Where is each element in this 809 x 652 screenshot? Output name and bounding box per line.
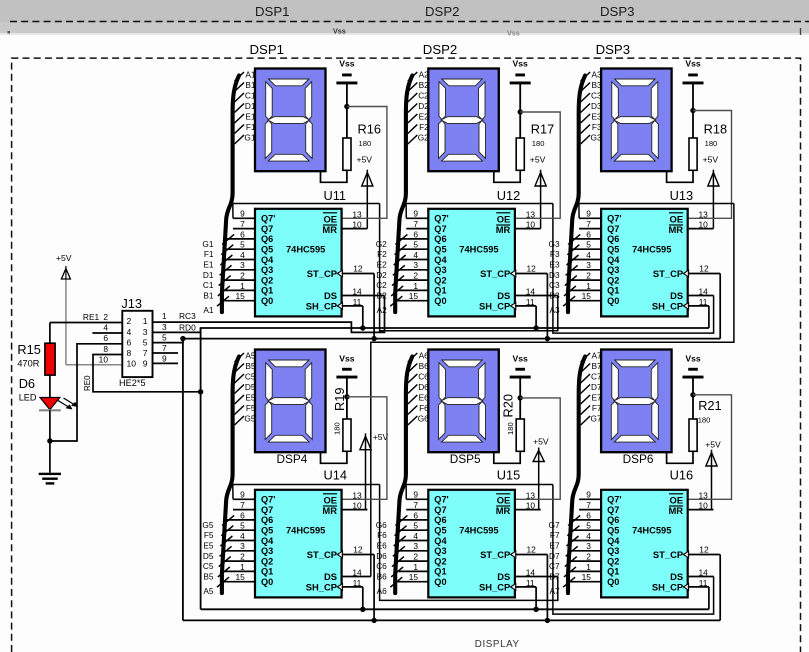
svg-text:9: 9: [143, 359, 148, 369]
svg-text:Q7: Q7: [261, 505, 273, 515]
svg-text:Q2: Q2: [261, 556, 273, 566]
svg-text:15: 15: [235, 572, 245, 582]
svg-text:A1: A1: [245, 70, 256, 80]
svg-text:5: 5: [143, 337, 148, 347]
svg-text:5: 5: [586, 521, 591, 531]
svg-text:3: 3: [586, 260, 591, 270]
svg-text:Q7': Q7': [607, 495, 621, 505]
svg-text:Q5: Q5: [434, 526, 446, 536]
svg-text:180: 180: [359, 139, 372, 148]
svg-text:Q3: Q3: [607, 265, 619, 275]
svg-text:DS: DS: [324, 290, 337, 301]
svg-text:A5: A5: [245, 351, 256, 361]
svg-text:Q1: Q1: [261, 286, 273, 296]
svg-text:9: 9: [413, 490, 418, 500]
svg-text:U13: U13: [670, 188, 693, 203]
svg-text:E3: E3: [549, 260, 560, 270]
svg-text:10: 10: [352, 501, 362, 511]
svg-text:A6: A6: [377, 586, 388, 596]
svg-text:Q6: Q6: [261, 515, 273, 525]
svg-text:Q0: Q0: [607, 577, 619, 587]
svg-text:10: 10: [127, 359, 137, 369]
svg-text:HE2*5: HE2*5: [119, 378, 146, 388]
svg-text:Q6: Q6: [607, 234, 619, 244]
svg-text:Q4: Q4: [261, 536, 274, 546]
svg-text:Q2: Q2: [434, 275, 446, 285]
svg-text:OE: OE: [323, 213, 337, 224]
svg-text:Q0: Q0: [261, 296, 273, 306]
svg-text:7: 7: [143, 348, 148, 358]
svg-text:A7: A7: [549, 586, 560, 596]
svg-text:D7: D7: [549, 551, 560, 561]
svg-text:B6: B6: [377, 571, 388, 581]
svg-text:A2: A2: [419, 70, 430, 80]
svg-text:7: 7: [240, 500, 245, 510]
svg-text:3: 3: [143, 327, 148, 337]
svg-text:2: 2: [127, 316, 132, 326]
svg-text:Q6: Q6: [434, 234, 446, 244]
svg-text:Q6: Q6: [607, 515, 619, 525]
svg-text:C2: C2: [376, 280, 387, 290]
svg-text:Q0: Q0: [434, 577, 446, 587]
svg-text:Q6: Q6: [261, 234, 273, 244]
svg-text:Q4: Q4: [607, 536, 620, 546]
svg-text:A6: A6: [419, 351, 430, 361]
svg-text:G1: G1: [244, 133, 255, 143]
svg-text:G1: G1: [202, 239, 213, 249]
svg-text:DSP1: DSP1: [250, 42, 284, 57]
svg-text:Q2: Q2: [434, 556, 446, 566]
svg-text:13: 13: [352, 490, 362, 500]
svg-text:OE: OE: [670, 213, 684, 224]
svg-text:B7: B7: [549, 571, 560, 581]
svg-text:E3: E3: [591, 112, 602, 122]
svg-text:MR: MR: [322, 224, 337, 235]
svg-text:D5: D5: [203, 551, 214, 561]
svg-text:7: 7: [240, 219, 245, 229]
svg-text:12: 12: [699, 545, 709, 555]
svg-text:A3: A3: [591, 70, 602, 80]
svg-text:RE0: RE0: [83, 375, 92, 391]
svg-text:Q5: Q5: [434, 245, 446, 255]
svg-text:RC3: RC3: [179, 311, 196, 321]
svg-text:C6: C6: [418, 372, 429, 382]
svg-text:E5: E5: [245, 393, 256, 403]
svg-text:5: 5: [240, 521, 245, 531]
svg-text:C5: C5: [203, 561, 214, 571]
svg-text:D6: D6: [19, 376, 35, 391]
svg-text:180: 180: [532, 139, 545, 148]
svg-text:R17: R17: [531, 122, 554, 137]
svg-text:74HC595: 74HC595: [459, 245, 498, 255]
svg-text:C3: C3: [549, 280, 560, 290]
svg-text:180: 180: [506, 422, 515, 435]
svg-text:180: 180: [333, 422, 342, 435]
svg-text:F7: F7: [550, 530, 560, 540]
svg-text:C5: C5: [245, 372, 256, 382]
svg-text:SH_CP: SH_CP: [479, 582, 510, 593]
svg-text:Q0: Q0: [434, 296, 446, 306]
svg-text:Q1: Q1: [261, 567, 273, 577]
svg-text:Q7: Q7: [261, 224, 273, 234]
svg-text:B1: B1: [203, 290, 214, 300]
svg-text:D1: D1: [245, 101, 256, 111]
svg-text:B5: B5: [203, 571, 214, 581]
svg-text:Vss: Vss: [513, 354, 529, 364]
svg-text:3: 3: [413, 260, 418, 270]
svg-text:1: 1: [162, 311, 167, 321]
svg-text:G6: G6: [418, 414, 429, 424]
svg-text:2: 2: [240, 271, 245, 281]
svg-text:Vss: Vss: [685, 59, 701, 69]
svg-text:SH_CP: SH_CP: [479, 301, 510, 312]
svg-text:4: 4: [413, 250, 418, 260]
svg-text:B3: B3: [591, 80, 602, 90]
svg-text:1: 1: [240, 562, 245, 572]
svg-text:B6: B6: [419, 361, 430, 371]
svg-text:2: 2: [586, 552, 591, 562]
svg-text:F2: F2: [377, 249, 387, 259]
svg-text:ST_CP: ST_CP: [480, 268, 510, 279]
svg-text:6: 6: [586, 229, 591, 239]
svg-text:Q3: Q3: [434, 265, 446, 275]
svg-text:Q6: Q6: [434, 515, 446, 525]
svg-text:DSP3: DSP3: [596, 42, 630, 57]
svg-text:ST_CP: ST_CP: [307, 268, 337, 279]
svg-text:DSP3: DSP3: [600, 4, 634, 19]
svg-text:+5V: +5V: [533, 436, 549, 446]
svg-text:10: 10: [526, 501, 536, 511]
svg-text:13: 13: [526, 490, 536, 500]
svg-text:2: 2: [586, 271, 591, 281]
svg-text:R21: R21: [698, 398, 721, 413]
svg-text:1: 1: [413, 562, 418, 572]
svg-text:E5: E5: [203, 541, 214, 551]
svg-text:MR: MR: [322, 505, 337, 516]
svg-text:+5V: +5V: [357, 155, 373, 165]
svg-text:U14: U14: [324, 467, 347, 482]
svg-text:13: 13: [526, 209, 536, 219]
svg-text:ST_CP: ST_CP: [653, 268, 683, 279]
svg-text:+5V: +5V: [530, 155, 546, 165]
svg-text:15: 15: [409, 291, 419, 301]
svg-text:6: 6: [413, 229, 418, 239]
svg-text:7: 7: [586, 500, 591, 510]
svg-text:B2: B2: [419, 80, 430, 90]
svg-text:B2: B2: [377, 290, 388, 300]
svg-text:Vss: Vss: [333, 27, 346, 36]
svg-text:2: 2: [240, 552, 245, 562]
svg-text:5: 5: [240, 240, 245, 250]
svg-text:D3: D3: [549, 270, 560, 280]
svg-text:RD0: RD0: [179, 323, 196, 333]
svg-text:Q7': Q7': [434, 495, 448, 505]
svg-text:4: 4: [240, 250, 245, 260]
svg-text:2: 2: [413, 552, 418, 562]
svg-text:7: 7: [162, 343, 167, 353]
svg-text:B5: B5: [245, 361, 256, 371]
svg-text:5: 5: [413, 521, 418, 531]
svg-text:180: 180: [705, 139, 718, 148]
svg-text:Vss: Vss: [339, 354, 355, 364]
svg-text:180: 180: [698, 415, 711, 424]
svg-text:G3: G3: [591, 133, 602, 143]
svg-text:470R: 470R: [17, 359, 39, 369]
svg-text:9: 9: [413, 209, 418, 219]
svg-text:OE: OE: [497, 213, 511, 224]
svg-text:LED: LED: [19, 393, 37, 403]
svg-text:1: 1: [586, 281, 591, 291]
svg-text:ST_CP: ST_CP: [480, 549, 510, 560]
svg-text:MR: MR: [669, 224, 684, 235]
svg-text:R19: R19: [332, 388, 347, 411]
svg-text:Q4: Q4: [607, 255, 620, 265]
svg-text:RE1: RE1: [83, 312, 100, 322]
svg-text:DSP2: DSP2: [423, 42, 457, 57]
svg-text:Q2: Q2: [261, 275, 273, 285]
svg-text:G2: G2: [376, 239, 387, 249]
svg-text:5: 5: [413, 240, 418, 250]
svg-text:Q4: Q4: [434, 536, 447, 546]
svg-text:12: 12: [699, 264, 709, 274]
svg-text:SH_CP: SH_CP: [306, 301, 337, 312]
svg-text:SH_CP: SH_CP: [306, 582, 337, 593]
svg-text:A3: A3: [549, 305, 560, 315]
svg-text:DISPLAY: DISPLAY: [475, 639, 520, 650]
svg-text:6: 6: [103, 333, 108, 343]
svg-text:G5: G5: [202, 520, 213, 530]
svg-text:G7: G7: [549, 520, 560, 530]
svg-text:12: 12: [353, 545, 363, 555]
svg-text:Q3: Q3: [261, 265, 273, 275]
svg-text:Q3: Q3: [261, 546, 273, 556]
svg-text:12: 12: [353, 264, 363, 274]
svg-text:Q3: Q3: [434, 546, 446, 556]
svg-text:Q0: Q0: [261, 577, 273, 587]
svg-text:G2: G2: [418, 133, 429, 143]
svg-text:6: 6: [240, 510, 245, 520]
svg-text:6: 6: [586, 510, 591, 520]
svg-text:15: 15: [582, 291, 592, 301]
svg-text:SH_CP: SH_CP: [652, 301, 683, 312]
svg-text:C6: C6: [376, 561, 387, 571]
svg-text:+5V: +5V: [56, 253, 72, 263]
svg-text:Q1: Q1: [607, 567, 619, 577]
svg-text:Q4: Q4: [434, 255, 447, 265]
svg-text:C3: C3: [591, 91, 602, 101]
svg-text:E6: E6: [377, 541, 388, 551]
svg-text:+5V: +5V: [705, 440, 721, 450]
svg-text:DSP6: DSP6: [623, 452, 654, 466]
svg-text:13: 13: [699, 490, 709, 500]
svg-text:R18: R18: [704, 122, 727, 137]
svg-text:15: 15: [235, 291, 245, 301]
svg-text:OE: OE: [497, 494, 511, 505]
svg-text:9: 9: [162, 353, 167, 363]
svg-text:Q7: Q7: [607, 505, 619, 515]
svg-text:4: 4: [127, 327, 132, 337]
svg-text:Q5: Q5: [261, 245, 273, 255]
svg-text:OE: OE: [323, 494, 337, 505]
svg-text:8: 8: [127, 348, 132, 358]
svg-text:4: 4: [413, 531, 418, 541]
svg-text:Q7: Q7: [434, 224, 446, 234]
svg-text:13: 13: [352, 209, 362, 219]
svg-text:13: 13: [699, 209, 709, 219]
svg-text:F6: F6: [419, 403, 429, 413]
svg-text:D6: D6: [418, 382, 429, 392]
svg-text:F6: F6: [377, 530, 387, 540]
svg-text:Q4: Q4: [261, 255, 274, 265]
svg-text:8: 8: [103, 344, 108, 354]
svg-text:C2: C2: [418, 91, 429, 101]
svg-text:Q7': Q7': [434, 214, 448, 224]
svg-text:74HC595: 74HC595: [632, 245, 671, 255]
svg-text:10: 10: [699, 501, 709, 511]
svg-text:Q1: Q1: [434, 567, 446, 577]
svg-text:10: 10: [526, 220, 536, 230]
svg-text:3: 3: [162, 322, 167, 332]
svg-text:Q2: Q2: [607, 556, 619, 566]
svg-text:D6: D6: [376, 551, 387, 561]
svg-text:Q1: Q1: [607, 286, 619, 296]
svg-text:Q1: Q1: [434, 286, 446, 296]
svg-text:15: 15: [582, 572, 592, 582]
svg-text:Q2: Q2: [607, 275, 619, 285]
svg-text:DSP4: DSP4: [277, 452, 308, 466]
svg-text:DS: DS: [497, 571, 510, 582]
svg-text:1: 1: [413, 281, 418, 291]
svg-text:DS: DS: [324, 571, 337, 582]
svg-text:6: 6: [240, 229, 245, 239]
svg-text:G5: G5: [244, 414, 255, 424]
svg-text:Q5: Q5: [607, 245, 619, 255]
svg-text:4: 4: [586, 531, 591, 541]
svg-text:4: 4: [240, 531, 245, 541]
svg-text:G7: G7: [591, 414, 602, 424]
svg-text:1: 1: [240, 281, 245, 291]
svg-text:DS: DS: [670, 571, 683, 582]
svg-text:Vss: Vss: [685, 354, 701, 364]
svg-text:4: 4: [586, 250, 591, 260]
svg-text:F1: F1: [246, 122, 256, 132]
svg-text:15: 15: [409, 572, 419, 582]
svg-text:+5V: +5V: [703, 155, 719, 165]
svg-text:2: 2: [413, 271, 418, 281]
svg-text:7: 7: [413, 500, 418, 510]
svg-text:3: 3: [413, 541, 418, 551]
svg-text:D2: D2: [418, 101, 429, 111]
svg-text:E1: E1: [203, 260, 214, 270]
svg-text:Q7: Q7: [434, 505, 446, 515]
svg-text:J13: J13: [121, 296, 142, 311]
svg-text:DSP2: DSP2: [425, 4, 459, 19]
svg-text:E2: E2: [419, 112, 430, 122]
svg-text:DS: DS: [670, 290, 683, 301]
svg-text:Q7': Q7': [261, 214, 275, 224]
svg-text:D2: D2: [376, 270, 387, 280]
svg-text:A1: A1: [203, 305, 214, 315]
svg-text:5: 5: [162, 332, 167, 342]
svg-text:D1: D1: [203, 270, 214, 280]
svg-text:74HC595: 74HC595: [286, 526, 325, 536]
svg-text:74HC595: 74HC595: [632, 526, 671, 536]
svg-text:2: 2: [103, 312, 108, 322]
svg-text:9: 9: [586, 490, 591, 500]
svg-text:Vss: Vss: [507, 29, 520, 38]
svg-text:G6: G6: [376, 520, 387, 530]
svg-text:9: 9: [240, 490, 245, 500]
svg-text:F2: F2: [419, 122, 429, 132]
svg-text:U11: U11: [324, 188, 347, 203]
svg-text:ST_CP: ST_CP: [307, 549, 337, 560]
svg-text:6: 6: [413, 510, 418, 520]
svg-text:Q7': Q7': [607, 214, 621, 224]
svg-text:C1: C1: [245, 91, 256, 101]
svg-text:Q5: Q5: [607, 526, 619, 536]
svg-text:+5V: +5V: [373, 432, 389, 442]
svg-text:E1: E1: [245, 112, 256, 122]
svg-text:Q7: Q7: [607, 224, 619, 234]
svg-text:E6: E6: [419, 393, 430, 403]
svg-text:4: 4: [103, 323, 108, 333]
svg-text:A7: A7: [591, 351, 602, 361]
svg-text:R15: R15: [17, 342, 40, 357]
svg-text:F1: F1: [204, 249, 214, 259]
svg-text:DS: DS: [497, 290, 510, 301]
svg-text:74HC595: 74HC595: [459, 526, 498, 536]
svg-text:Vss: Vss: [339, 59, 355, 69]
svg-text:E7: E7: [591, 393, 602, 403]
svg-text:5: 5: [586, 240, 591, 250]
svg-text:Q0: Q0: [607, 296, 619, 306]
svg-text:1: 1: [586, 562, 591, 572]
svg-text:1: 1: [143, 316, 148, 326]
svg-text:MR: MR: [496, 505, 511, 516]
svg-text:A2: A2: [377, 305, 388, 315]
svg-text:B3: B3: [549, 290, 560, 300]
svg-text:10: 10: [699, 220, 709, 230]
svg-text:3: 3: [240, 541, 245, 551]
svg-text:9: 9: [586, 209, 591, 219]
svg-text:F3: F3: [592, 122, 602, 132]
svg-text:E7: E7: [549, 541, 560, 551]
svg-text:R20: R20: [501, 394, 516, 417]
svg-text:SH_CP: SH_CP: [652, 582, 683, 593]
svg-text:Q7': Q7': [261, 495, 275, 505]
svg-text:10: 10: [99, 354, 109, 364]
svg-text:9: 9: [240, 209, 245, 219]
svg-text:DSP1: DSP1: [255, 4, 289, 19]
svg-text:A5: A5: [203, 586, 214, 596]
svg-text:C7: C7: [549, 561, 560, 571]
svg-text:F7: F7: [592, 403, 602, 413]
svg-text:Q5: Q5: [261, 526, 273, 536]
svg-text:F5: F5: [204, 530, 214, 540]
svg-text:U16: U16: [670, 467, 693, 482]
svg-text:OE: OE: [670, 494, 684, 505]
svg-text:10: 10: [352, 220, 362, 230]
svg-text:U15: U15: [497, 467, 520, 482]
svg-text:6: 6: [127, 337, 132, 347]
svg-text:G3: G3: [549, 239, 560, 249]
svg-text:3: 3: [586, 541, 591, 551]
svg-text:7: 7: [413, 219, 418, 229]
svg-text:7: 7: [586, 219, 591, 229]
svg-text:B1: B1: [245, 80, 256, 90]
svg-text:R16: R16: [358, 122, 381, 137]
svg-text:D3: D3: [591, 101, 602, 111]
